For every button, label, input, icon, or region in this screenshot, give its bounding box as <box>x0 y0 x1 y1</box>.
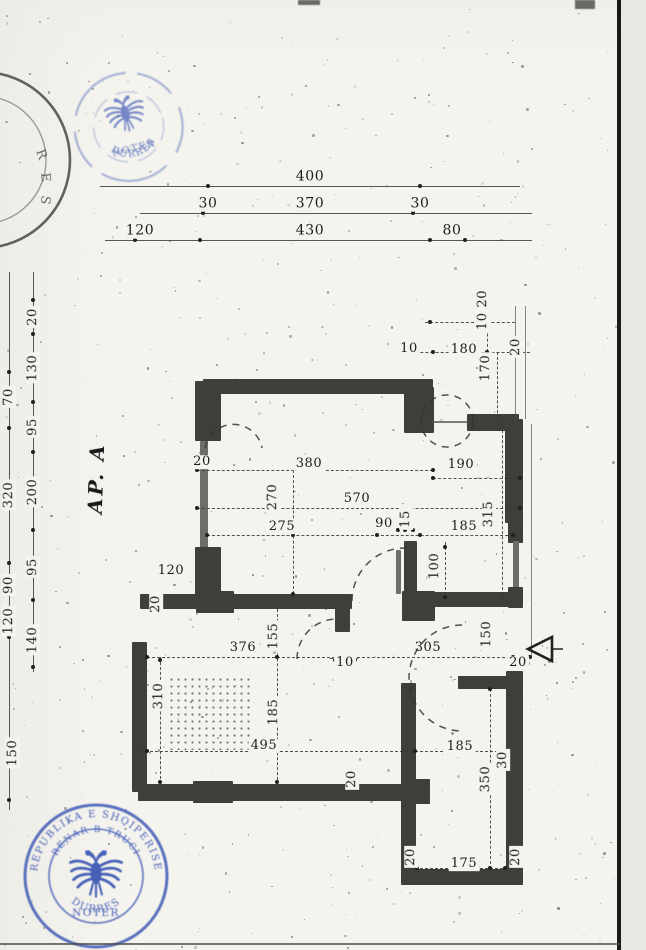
wall-segment <box>140 594 352 609</box>
dim-label: 95 <box>26 556 40 578</box>
dimension-line <box>433 478 523 479</box>
dim-label: 185 <box>267 697 281 728</box>
dimension-dot <box>431 476 435 480</box>
projection-line <box>515 306 516 419</box>
wall-segment <box>132 642 147 792</box>
dim-label: 150 <box>480 619 494 650</box>
wall-segment <box>402 591 435 621</box>
dim-label: 150 <box>6 738 20 769</box>
dimension-dot <box>158 658 162 662</box>
scanned-page: 4003037030120430802013095200951407032090… <box>0 0 646 950</box>
dim-label: 30 <box>196 197 219 212</box>
dimension-dot <box>195 506 199 510</box>
dimension-dot <box>463 238 467 242</box>
dimension-dot <box>158 780 162 784</box>
dimension-dot <box>291 592 295 596</box>
dim-label: 90 <box>2 574 16 596</box>
dimension-dot <box>31 450 35 454</box>
dim-label: 30 <box>408 197 431 212</box>
dimension-line <box>497 352 498 418</box>
dim-label: 180 <box>449 343 480 357</box>
dimension-dot <box>518 476 522 480</box>
dimension-dot <box>275 780 279 784</box>
dim-label: 120 <box>156 564 187 578</box>
dimension-dot <box>7 370 11 374</box>
tiled-floor-hatch <box>168 676 250 750</box>
wall-segment <box>404 387 434 433</box>
dimension-dot <box>31 665 35 669</box>
dimension-dot <box>418 184 422 188</box>
dimension-line <box>207 535 523 536</box>
dim-label: 140 <box>26 625 40 656</box>
dimension-dot <box>488 866 492 870</box>
dimension-dot <box>145 655 149 659</box>
dimension-dot <box>198 238 202 242</box>
dim-label: 120 <box>2 606 16 637</box>
dim-label: 350 <box>479 764 493 795</box>
dim-label: 380 <box>294 457 325 471</box>
dim-label: 95 <box>26 416 40 438</box>
dim-label: 305 <box>413 641 444 655</box>
dim-label: 20 <box>345 768 359 790</box>
dimension-dot <box>31 528 35 532</box>
dimension-dot <box>31 298 35 302</box>
dim-label: 130 <box>26 353 40 384</box>
dimension-dot <box>431 468 435 472</box>
dim-label: 10 <box>334 656 356 670</box>
dimension-dot <box>275 655 279 659</box>
wall-segment <box>138 784 430 801</box>
dim-label: 70 <box>2 386 16 408</box>
projection-line <box>531 424 532 658</box>
dim-label: 270 <box>266 482 280 513</box>
dimension-line <box>425 322 515 323</box>
apartment-label: AP. A <box>83 442 109 514</box>
dim-label: 190 <box>446 458 477 472</box>
dim-label: 376 <box>228 641 259 655</box>
dim-label: 370 <box>294 197 327 212</box>
wall-segment <box>335 594 350 632</box>
dimension-dot <box>488 687 492 691</box>
dimension-line <box>105 240 532 241</box>
wall-segment <box>396 550 401 594</box>
dim-label: 155 <box>267 621 281 652</box>
dimension-dot <box>413 749 417 753</box>
wall-segment <box>193 781 233 803</box>
dimension-line <box>9 272 10 810</box>
dimension-dot <box>431 350 435 354</box>
dim-label: 275 <box>267 520 298 534</box>
wall-segment <box>458 676 508 689</box>
dim-label: 20 <box>149 593 163 615</box>
dim-label: 10 20 <box>476 288 490 332</box>
dim-label: 20 <box>507 656 529 670</box>
dim-label: 90 <box>373 517 395 531</box>
dimension-dot <box>205 533 209 537</box>
dimension-dot <box>31 598 35 602</box>
wall-segment <box>508 521 523 543</box>
wall-segment <box>196 591 234 613</box>
dim-label: 20 <box>404 846 418 868</box>
dimension-dot <box>145 749 149 753</box>
dimension-dot <box>518 506 522 510</box>
dim-label: 185 <box>449 520 480 534</box>
dimension-dot <box>511 533 515 537</box>
dimension-line <box>197 508 523 509</box>
dim-label: 30 <box>496 749 510 771</box>
wall-segment <box>401 683 416 873</box>
dim-label: 495 <box>249 739 280 753</box>
dimension-line <box>140 213 532 214</box>
dimension-line <box>445 542 446 600</box>
wall-segment <box>195 381 221 441</box>
wall-segment <box>401 869 523 885</box>
dim-label: 310 <box>152 681 166 712</box>
dim-label: 200 <box>26 477 40 508</box>
dimension-dot <box>428 238 432 242</box>
dimension-dot <box>503 866 507 870</box>
dim-label: 20 <box>509 846 523 868</box>
dim-label: 185 <box>445 740 476 754</box>
dim-label: 15 <box>399 508 413 530</box>
dimension-line <box>160 657 161 784</box>
projection-line <box>525 306 526 419</box>
dim-label: 320 <box>2 480 16 511</box>
dim-label: 430 <box>294 224 327 239</box>
dimension-dot <box>31 332 35 336</box>
dimension-dot <box>31 400 35 404</box>
dim-label: 170 <box>479 353 493 384</box>
dimension-line <box>502 420 503 600</box>
dimension-line <box>100 186 520 187</box>
dim-label: 10 <box>398 342 420 356</box>
dim-label: 400 <box>294 170 327 185</box>
dim-label: 570 <box>342 492 373 506</box>
dimension-dot <box>7 426 11 430</box>
dim-label: 20 <box>509 336 523 358</box>
dimension-dot <box>443 595 447 599</box>
dim-label: 175 <box>449 857 480 871</box>
dim-label: 315 <box>482 499 496 530</box>
dim-label: 20 <box>191 455 213 469</box>
dim-label: 100 <box>428 551 442 582</box>
dimension-dot <box>7 561 11 565</box>
dim-label: 80 <box>440 224 463 239</box>
dimension-dot <box>7 798 11 802</box>
dimension-dot <box>418 533 422 537</box>
dimension-dot <box>206 184 210 188</box>
dim-label: 20 <box>26 306 40 328</box>
wall-segment <box>513 541 519 589</box>
dimension-dot <box>443 545 447 549</box>
dimension-dot <box>375 533 379 537</box>
dim-label: 120 <box>124 224 157 239</box>
wall-segment <box>203 379 433 394</box>
dimension-dot <box>428 320 432 324</box>
